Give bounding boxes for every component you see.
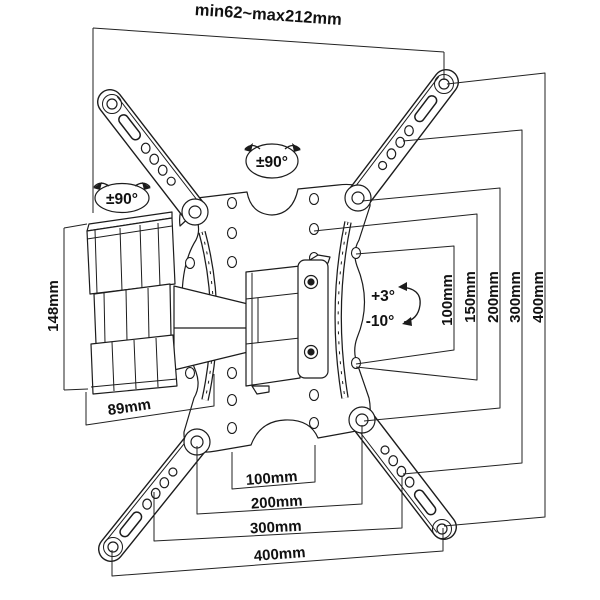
dim-right-400-label: 400mm bbox=[530, 271, 547, 323]
swivel-plate-label: ±90° bbox=[256, 154, 288, 171]
dim-right-100-label: 100mm bbox=[439, 274, 456, 326]
tv-mount-diagram: min62~max212mm 100mm 150mm 200mm 300mm 4… bbox=[0, 0, 600, 600]
tilt-down-label: -10° bbox=[366, 313, 395, 330]
dim-right-300-label: 300mm bbox=[507, 271, 524, 323]
dim-right-150-label: 150mm bbox=[462, 271, 479, 323]
swivel-arm-label: ±90° bbox=[106, 191, 138, 208]
tilt-up-label: +3° bbox=[371, 288, 395, 305]
dim-arm-height-label: 148mm bbox=[45, 280, 62, 332]
center-tilt-bracket bbox=[246, 255, 330, 394]
diagram-canvas: min62~max212mm 100mm 150mm 200mm 300mm 4… bbox=[0, 0, 600, 600]
dim-bottom-300-label: 300mm bbox=[250, 518, 303, 538]
dim-right-200-label: 200mm bbox=[485, 271, 502, 323]
dim-bottom-200-label: 200mm bbox=[250, 492, 303, 512]
